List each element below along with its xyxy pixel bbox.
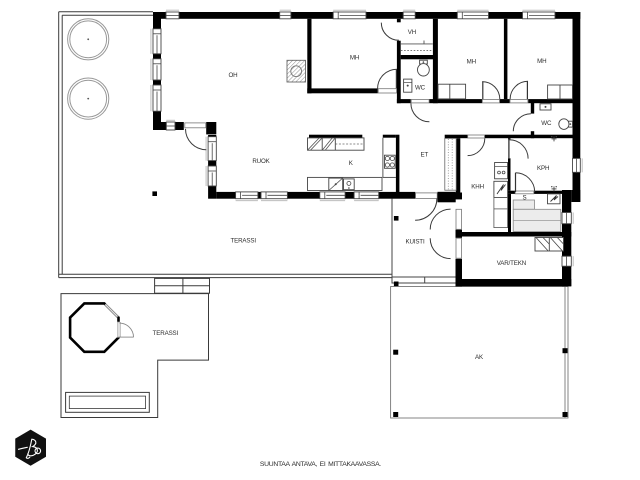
svg-text:OH: OH [229, 72, 238, 79]
svg-text:TERASSI: TERASSI [230, 237, 256, 244]
svg-text:KHH: KHH [471, 184, 484, 191]
svg-text:KPH: KPH [537, 165, 549, 172]
svg-text:AK: AK [475, 354, 484, 361]
svg-text:MH: MH [467, 59, 476, 66]
svg-text:SUUNTAA ANTAVA, EI MITTAKAAVAS: SUUNTAA ANTAVA, EI MITTAKAAVASSA. [260, 461, 381, 468]
svg-text:VH: VH [408, 29, 416, 36]
svg-text:S: S [523, 195, 527, 202]
svg-text:RUOK: RUOK [252, 158, 270, 165]
svg-text:TERASSI: TERASSI [153, 330, 179, 337]
svg-text:WC: WC [541, 120, 552, 127]
svg-text:MH: MH [350, 54, 359, 61]
svg-text:KUISTI: KUISTI [405, 238, 424, 245]
svg-text:MH: MH [537, 58, 546, 65]
svg-text:ET: ET [420, 152, 428, 159]
svg-text:VAR/TEKN: VAR/TEKN [497, 260, 526, 267]
svg-text:WC: WC [415, 84, 426, 91]
